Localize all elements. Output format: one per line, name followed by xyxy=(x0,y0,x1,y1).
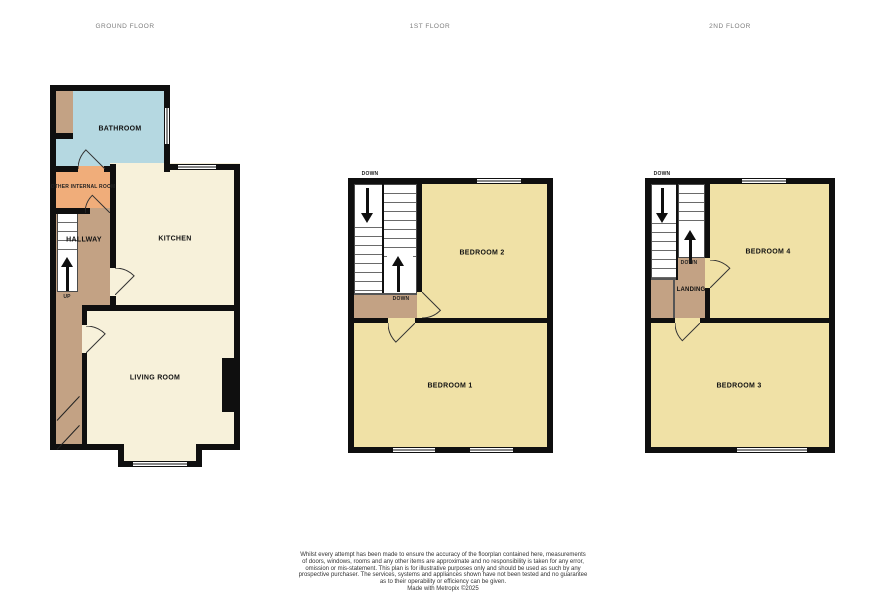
wall-segment xyxy=(645,178,651,453)
wall-segment xyxy=(645,178,835,184)
landing-label: LANDING xyxy=(677,287,706,293)
disclaimer-line: as to their operability or efficiency ca… xyxy=(0,579,886,586)
down-arrow-stem xyxy=(661,188,664,214)
disclaimer: Whilst every attempt has been made to en… xyxy=(0,552,886,593)
window xyxy=(737,447,807,453)
disclaimer-line: Whilst every attempt has been made to en… xyxy=(0,552,886,559)
bedroom-divider-wall xyxy=(700,318,835,323)
stair-divider xyxy=(676,184,678,280)
cupboard-partition xyxy=(673,280,675,318)
down-label-landing: DOWN xyxy=(681,260,698,266)
stair-side-wall xyxy=(705,184,710,258)
stair-treads xyxy=(652,215,677,279)
stair-side-wall xyxy=(705,288,710,318)
wall-segment xyxy=(829,178,835,453)
disclaimer-line: of doors, windows, rooms and any other i… xyxy=(0,559,886,566)
door-arc xyxy=(710,260,738,288)
up-arrow-head xyxy=(684,230,696,240)
bedroom3-label: BEDROOM 3 xyxy=(716,383,761,390)
metropix-credit: Made with Metropix ©2025 xyxy=(0,586,886,593)
floorplan-canvas: GROUND FLOOR 1ST FLOOR 2ND FLOOR xyxy=(0,0,886,595)
second-floor-plan: DOWN DOWN LANDING BEDROOM 4 BEDROOM 3 xyxy=(0,0,886,595)
window xyxy=(742,178,786,184)
down-arrow-head xyxy=(656,213,668,223)
bedroom4-label: BEDROOM 4 xyxy=(745,249,790,256)
disclaimer-line: omission or mis-statement. This plan is … xyxy=(0,566,886,573)
stair-cupboard xyxy=(651,280,673,318)
stair-flight-down xyxy=(651,184,678,280)
stair-treads xyxy=(679,185,704,229)
bedroom-divider-wall xyxy=(645,318,675,323)
door-arc xyxy=(675,323,700,348)
down-label-exterior: DOWN xyxy=(654,171,671,177)
disclaimer-line: prospective purchaser. The services, sys… xyxy=(0,572,886,579)
